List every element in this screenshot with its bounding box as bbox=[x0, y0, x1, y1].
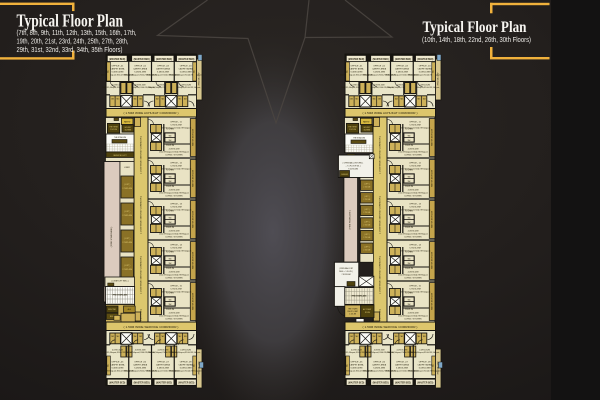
svg-text:5.76X3.49M: 5.76X3.49M bbox=[170, 207, 181, 209]
svg-text:2.7X2.4M: 2.7X2.4M bbox=[363, 199, 370, 201]
svg-text:OFFICE -03: OFFICE -03 bbox=[396, 66, 409, 68]
svg-text:5.76X3.49M: 5.76X3.49M bbox=[170, 125, 181, 127]
svg-text:( 1.50M WIDE SERVICE CORRIDOR: ( 1.50M WIDE SERVICE CORRIDOR ) bbox=[380, 196, 382, 234]
svg-text:OFFICE -07: OFFICE -07 bbox=[157, 362, 170, 364]
svg-text:OFFICE -04: OFFICE -04 bbox=[419, 66, 432, 68]
svg-text:(MASTER BED): (MASTER BED) bbox=[417, 58, 433, 61]
svg-text:(MASTER BED): (MASTER BED) bbox=[134, 58, 150, 61]
svg-text:CARPET AREA: CARPET AREA bbox=[179, 68, 194, 71]
svg-text:4.09X3.32M: 4.09X3.32M bbox=[408, 190, 419, 192]
svg-text:OFFICE - 14: OFFICE - 14 bbox=[409, 245, 422, 247]
svg-text:( LIFT ): ( LIFT ) bbox=[364, 184, 370, 186]
svg-text:( LIFT ): ( LIFT ) bbox=[124, 184, 131, 186]
svg-text:5.76X3.49M: 5.76X3.49M bbox=[170, 289, 181, 291]
svg-text:2.16X1.2M: 2.16X1.2M bbox=[405, 309, 414, 311]
svg-text:THE TERR: THE TERR bbox=[109, 126, 118, 128]
svg-text:5.76X3.49M: 5.76X3.49M bbox=[409, 248, 420, 250]
svg-text:MASTER BEDROOM: MASTER BEDROOM bbox=[430, 292, 433, 310]
svg-text:2.16X1.2M: 2.16X1.2M bbox=[166, 227, 175, 229]
svg-text:2.16X1.2M: 2.16X1.2M bbox=[405, 268, 414, 270]
svg-text:4.09X3.32M: 4.09X3.32M bbox=[169, 231, 180, 233]
svg-text:5.08X3.49M: 5.08X3.49M bbox=[157, 72, 169, 74]
svg-text:OFFICE - 11: OFFICE - 11 bbox=[170, 122, 182, 124]
svg-text:MASTER BEDROOM: MASTER BEDROOM bbox=[191, 251, 194, 269]
svg-text:2.70X2.40M: 2.70X2.40M bbox=[122, 215, 132, 217]
svg-text:( 1.50M WIDE SERVICE CORRIDOR: ( 1.50M WIDE SERVICE CORRIDOR ) bbox=[141, 196, 143, 234]
svg-text:( LIFT ): ( LIFT ) bbox=[364, 234, 370, 236]
svg-text:( LIFT ): ( LIFT ) bbox=[124, 211, 131, 213]
svg-text:2.16X1.2M: 2.16X1.2M bbox=[405, 145, 414, 147]
svg-text:5.08X3.49M: 5.08X3.49M bbox=[112, 72, 124, 74]
svg-text:MASTER BEDROOM: MASTER BEDROOM bbox=[430, 128, 433, 146]
svg-text:4.09X3.32M: 4.09X3.32M bbox=[408, 272, 419, 274]
svg-text:(MASTER BED): (MASTER BED) bbox=[156, 58, 172, 61]
svg-text:2.70X2.40M: 2.70X2.40M bbox=[122, 188, 132, 190]
svg-text:5.08X3.49M: 5.08X3.49M bbox=[351, 72, 363, 74]
svg-text:B.M.S: B.M.S bbox=[110, 316, 114, 318]
svg-text:SERVICE DUCT: SERVICE DUCT bbox=[113, 155, 127, 157]
svg-text:5.76X3.49M: 5.76X3.49M bbox=[170, 248, 181, 250]
svg-text:MASTER BEDROOM: MASTER BEDROOM bbox=[430, 169, 433, 187]
svg-text:KITCHEN: KITCHEN bbox=[166, 129, 174, 131]
svg-text:LIVING / KITCHEN: LIVING / KITCHEN bbox=[404, 196, 422, 198]
svg-text:7.50X3.00M: 7.50X3.00M bbox=[341, 274, 351, 276]
svg-text:OFFICE -01: OFFICE -01 bbox=[112, 66, 125, 68]
svg-text:OFFICE -07: OFFICE -07 bbox=[396, 362, 409, 364]
svg-text:5.08X3.49M: 5.08X3.49M bbox=[373, 368, 385, 370]
svg-text:2.70X2.40M: 2.70X2.40M bbox=[122, 242, 132, 244]
svg-text:CARPET AREA: CARPET AREA bbox=[418, 364, 433, 367]
svg-text:MASTER BEDROOM: MASTER BEDROOM bbox=[191, 169, 194, 187]
svg-text:18&#39;9&quot;X11&#39;5&quot;: 18&#39;9&quot;X11&#39;5&quot; bbox=[399, 127, 430, 130]
svg-text:( LIFT ): ( LIFT ) bbox=[364, 196, 370, 198]
svg-text:OFFICE - 13: OFFICE - 13 bbox=[170, 204, 183, 206]
svg-text:( LIFT ): ( LIFT ) bbox=[124, 238, 131, 240]
svg-text:2.16X1.2M: 2.16X1.2M bbox=[405, 186, 414, 188]
svg-text:PANTRY: PANTRY bbox=[124, 120, 132, 123]
svg-text:4.09X3.32M: 4.09X3.32M bbox=[135, 350, 146, 352]
svg-text:OFFICE - 13: OFFICE - 13 bbox=[409, 204, 422, 206]
svg-text:5.08X3.49M: 5.08X3.49M bbox=[419, 72, 431, 74]
svg-text:THE TERR: THE TERR bbox=[348, 126, 357, 128]
svg-text:(MASTER BED): (MASTER BED) bbox=[348, 382, 364, 385]
svg-text:5.08X3.49M: 5.08X3.49M bbox=[134, 72, 146, 74]
svg-text:OFFICE - 12: OFFICE - 12 bbox=[409, 163, 422, 165]
svg-text:SCREEN: SCREEN bbox=[364, 130, 371, 132]
svg-text:THE STADIUM: THE STADIUM bbox=[114, 136, 127, 139]
svg-text:( FIRE STAIRCASE ): ( FIRE STAIRCASE ) bbox=[110, 226, 113, 247]
svg-text:2.1X1.8M: 2.1X1.8M bbox=[349, 314, 356, 316]
svg-text:Typical Floor Plan: Typical Floor Plan bbox=[423, 19, 527, 36]
svg-text:OFFICE -08: OFFICE -08 bbox=[419, 362, 432, 364]
svg-text:MASTER BEDROOM: MASTER BEDROOM bbox=[191, 210, 194, 228]
svg-text:5.08X3.49M: 5.08X3.49M bbox=[351, 368, 363, 370]
svg-text:CARPET AREA: CARPET AREA bbox=[110, 68, 125, 71]
svg-text:2.16X1.2M: 2.16X1.2M bbox=[166, 268, 175, 270]
svg-text:OFFICE -03: OFFICE -03 bbox=[157, 66, 170, 68]
svg-text:5.08X3.49M: 5.08X3.49M bbox=[180, 72, 192, 74]
svg-text:18&#39;9&quot;X11&#39;5&quot;: 18&#39;9&quot;X11&#39;5&quot; bbox=[399, 291, 430, 294]
svg-text:LIVING / KITCHEN: LIVING / KITCHEN bbox=[165, 319, 183, 321]
svg-text:OFFICE -05: OFFICE -05 bbox=[351, 362, 364, 364]
svg-text:( 1.50M WIDE SERVICE CORRIDOR: ( 1.50M WIDE SERVICE CORRIDOR ) bbox=[363, 326, 418, 329]
svg-text:LIVING / KITCHEN: LIVING / KITCHEN bbox=[404, 278, 422, 280]
svg-text:2.16X1.2M: 2.16X1.2M bbox=[405, 227, 414, 229]
svg-text:OFFICE - 14: OFFICE - 14 bbox=[170, 245, 183, 247]
svg-text:CARPET AREA: CARPET AREA bbox=[156, 68, 171, 71]
svg-text:5.08X3.49M: 5.08X3.49M bbox=[157, 368, 169, 370]
svg-text:4.09X3.32M: 4.09X3.32M bbox=[351, 350, 362, 352]
svg-text:OFFICE -02: OFFICE -02 bbox=[134, 66, 147, 68]
svg-text:18&#39;9&quot;X11&#39;5&quot;: 18&#39;9&quot;X11&#39;5&quot; bbox=[399, 250, 430, 253]
svg-text:5.08X3.49M: 5.08X3.49M bbox=[373, 72, 385, 74]
svg-text:2.7X2.4M: 2.7X2.4M bbox=[363, 224, 370, 226]
svg-text:16&#39;8&quot;X11&#39;5&quot;: 16&#39;8&quot;X11&#39;5&quot; bbox=[169, 370, 202, 373]
svg-text:(MASTER BED): (MASTER BED) bbox=[417, 382, 433, 385]
svg-text:LIVING / KITCHEN: LIVING / KITCHEN bbox=[404, 319, 422, 321]
svg-text:2.5X2.0M: 2.5X2.0M bbox=[110, 129, 117, 131]
svg-text:OFFICE -02: OFFICE -02 bbox=[373, 66, 386, 68]
svg-text:THE TOWER: THE TOWER bbox=[348, 309, 358, 311]
svg-text:(MASTER BED): (MASTER BED) bbox=[178, 58, 194, 61]
svg-text:( LIFT ): ( LIFT ) bbox=[364, 209, 370, 211]
svg-text:CARPET AREA: CARPET AREA bbox=[133, 68, 148, 71]
svg-text:CARPET AREA: CARPET AREA bbox=[372, 364, 387, 367]
svg-text:OFFICE - 15: OFFICE - 15 bbox=[409, 286, 422, 288]
svg-text:LIVING / KITCHEN: LIVING / KITCHEN bbox=[165, 196, 183, 198]
svg-text:( LIFT ): ( LIFT ) bbox=[364, 221, 370, 223]
svg-text:( LIFT ): ( LIFT ) bbox=[124, 265, 131, 267]
svg-text:LIVING / KITCHEN: LIVING / KITCHEN bbox=[165, 155, 183, 157]
svg-text:OFFICE -05: OFFICE -05 bbox=[112, 362, 125, 364]
svg-text:(MASTER BED): (MASTER BED) bbox=[109, 58, 125, 61]
svg-text:2.7X2.4M: 2.7X2.4M bbox=[363, 212, 370, 214]
svg-text:OFFICE - 15: OFFICE - 15 bbox=[170, 286, 183, 288]
svg-text:CHILLER: CHILLER bbox=[341, 174, 349, 176]
svg-text:4.09X3.32M: 4.09X3.32M bbox=[180, 350, 191, 352]
svg-text:4.09X3.32M: 4.09X3.32M bbox=[169, 313, 180, 315]
svg-text:FIRE TWR: FIRE TWR bbox=[108, 309, 117, 311]
svg-text:5.08X3.49M: 5.08X3.49M bbox=[419, 368, 431, 370]
svg-text:4.09X3.32M: 4.09X3.32M bbox=[112, 350, 123, 352]
svg-text:( 1.50M WIDE SERVICE CORRIDOR: ( 1.50M WIDE SERVICE CORRIDOR ) bbox=[141, 136, 143, 174]
svg-text:4.09X3.32M: 4.09X3.32M bbox=[169, 190, 180, 192]
svg-text:CARPET AREA: CARPET AREA bbox=[179, 364, 194, 367]
svg-text:SCREEN: SCREEN bbox=[125, 130, 132, 132]
svg-text:5.08X3.49M: 5.08X3.49M bbox=[396, 368, 408, 370]
svg-text:CARPET AREA: CARPET AREA bbox=[133, 364, 148, 367]
svg-text:OFFICE -06: OFFICE -06 bbox=[134, 362, 147, 364]
svg-text:MASTER BEDROOM: MASTER BEDROOM bbox=[191, 128, 194, 146]
svg-text:16&#39;8&quot;X11&#39;5&quot;: 16&#39;8&quot;X11&#39;5&quot; bbox=[408, 74, 441, 77]
svg-text:( OPEN BALCONY WELL: ( OPEN BALCONY WELL bbox=[343, 162, 364, 165]
svg-text:5.76X3.49M: 5.76X3.49M bbox=[170, 166, 181, 168]
svg-text:( FIRE STAIRCASE ): ( FIRE STAIRCASE ) bbox=[349, 210, 352, 230]
svg-text:18&#39;9&quot;X11&#39;5&quot;: 18&#39;9&quot;X11&#39;5&quot; bbox=[160, 250, 191, 253]
svg-text:2.7X2.4M: 2.7X2.4M bbox=[363, 250, 370, 252]
svg-text:( OPEN BALCONY: ( OPEN BALCONY bbox=[339, 267, 354, 270]
svg-text:LOBBY: LOBBY bbox=[124, 167, 131, 169]
svg-text:CARPET AREA: CARPET AREA bbox=[395, 364, 410, 367]
svg-text:4.09X3.32M: 4.09X3.32M bbox=[408, 231, 419, 233]
svg-text:THE STADIUM: THE STADIUM bbox=[353, 137, 366, 140]
svg-text:KITCHEN: KITCHEN bbox=[405, 170, 413, 172]
svg-text:(MASTER BED): (MASTER BED) bbox=[395, 382, 411, 385]
svg-text:KITCHEN: KITCHEN bbox=[405, 129, 413, 131]
svg-text:4.09X3.32M: 4.09X3.32M bbox=[169, 272, 180, 274]
svg-text:MASTER BEDROOM: MASTER BEDROOM bbox=[430, 251, 433, 269]
svg-text:LIVING / KITCHEN: LIVING / KITCHEN bbox=[165, 237, 183, 239]
svg-text:4.09X3.32M: 4.09X3.32M bbox=[408, 313, 419, 315]
svg-text:2.7X2.4M: 2.7X2.4M bbox=[363, 237, 370, 239]
svg-text:CARPET AREA: CARPET AREA bbox=[156, 364, 171, 367]
svg-text:(MASTER BED): (MASTER BED) bbox=[134, 382, 150, 385]
svg-text:5.08X3.49M: 5.08X3.49M bbox=[134, 368, 146, 370]
svg-text:CARPET AREA: CARPET AREA bbox=[372, 68, 387, 71]
svg-text:OFFICE -01: OFFICE -01 bbox=[351, 66, 364, 68]
svg-text:5.08X3.49M: 5.08X3.49M bbox=[180, 368, 192, 370]
svg-text:(MASTER BED): (MASTER BED) bbox=[373, 382, 389, 385]
svg-text:CARPET AREA: CARPET AREA bbox=[110, 364, 125, 367]
svg-text:5.76X3.49M: 5.76X3.49M bbox=[409, 289, 420, 291]
svg-text:2.16X1.2M: 2.16X1.2M bbox=[166, 145, 175, 147]
svg-text:16&#39;8&quot;X11&#39;5&quot;: 16&#39;8&quot;X11&#39;5&quot; bbox=[408, 370, 441, 373]
svg-text:4.09X3.32M: 4.09X3.32M bbox=[397, 350, 408, 352]
svg-text:( 1.50M WIDE SERVICE CORRIDOR: ( 1.50M WIDE SERVICE CORRIDOR ) bbox=[380, 256, 382, 294]
svg-text:DN/UP LOBBY: DN/UP LOBBY bbox=[347, 311, 359, 313]
svg-text:18&#39;9&quot;X11&#39;5&quot;: 18&#39;9&quot;X11&#39;5&quot; bbox=[160, 127, 191, 130]
svg-text:4.09X3.32M: 4.09X3.32M bbox=[374, 350, 385, 352]
svg-text:OFFICE -04: OFFICE -04 bbox=[180, 66, 193, 68]
svg-text:2.16X1.2M: 2.16X1.2M bbox=[166, 186, 175, 188]
svg-text:18&#39;9&quot;X11&#39;5&quot;: 18&#39;9&quot;X11&#39;5&quot; bbox=[160, 291, 191, 294]
svg-text:LIVING / KITCHEN: LIVING / KITCHEN bbox=[404, 237, 422, 239]
svg-text:+ 7.5 FLOOR WL ): + 7.5 FLOOR WL ) bbox=[346, 166, 361, 168]
svg-text:CARPET AREA: CARPET AREA bbox=[418, 68, 433, 71]
svg-text:13&#39;5&quot;X10&#39;9&quot;: 13&#39;5&quot;X10&#39;9&quot; bbox=[410, 351, 440, 354]
svg-text:KITCHEN: KITCHEN bbox=[166, 293, 174, 295]
svg-text:5.08X3.49M: 5.08X3.49M bbox=[112, 368, 124, 370]
svg-text:FIRE STAIRCASE: FIRE STAIRCASE bbox=[113, 294, 129, 297]
svg-text:KITCHEN: KITCHEN bbox=[166, 252, 174, 254]
svg-text:LIVING / KITCHEN: LIVING / KITCHEN bbox=[165, 278, 183, 280]
svg-text:5.76X3.49M: 5.76X3.49M bbox=[409, 166, 420, 168]
svg-text:5.08X3.49M: 5.08X3.49M bbox=[396, 72, 408, 74]
svg-text:2.7X2.4M: 2.7X2.4M bbox=[363, 187, 370, 189]
svg-text:ROOM: ROOM bbox=[365, 312, 371, 314]
svg-text:KITCHEN: KITCHEN bbox=[405, 252, 413, 254]
svg-text:16&#39;8&quot;X11&#39;5&quot;: 16&#39;8&quot;X11&#39;5&quot; bbox=[169, 74, 202, 77]
svg-text:KITCHEN: KITCHEN bbox=[166, 170, 174, 172]
svg-text:4.09X3.32M: 4.09X3.32M bbox=[419, 350, 430, 352]
svg-text:KITCHEN: KITCHEN bbox=[405, 211, 413, 213]
svg-text:CARPET AREA: CARPET AREA bbox=[349, 68, 364, 71]
svg-text:18&#39;9&quot;X11&#39;5&quot;: 18&#39;9&quot;X11&#39;5&quot; bbox=[399, 209, 430, 212]
svg-text:2.16X1.2M: 2.16X1.2M bbox=[166, 309, 175, 311]
svg-text:( LOBBY/LIFT WELL ): ( LOBBY/LIFT WELL ) bbox=[111, 281, 129, 283]
svg-text:18&#39;9&quot;X11&#39;5&quot;: 18&#39;9&quot;X11&#39;5&quot; bbox=[399, 168, 430, 171]
svg-text:CARPET AREA: CARPET AREA bbox=[395, 68, 410, 71]
svg-text:OFFICE -08: OFFICE -08 bbox=[180, 362, 193, 364]
svg-text:( 1.50M WIDE SERVICE CORRIDOR: ( 1.50M WIDE SERVICE CORRIDOR ) bbox=[124, 326, 179, 329]
svg-text:OFFICE -06: OFFICE -06 bbox=[373, 362, 386, 364]
svg-text:MASTER BEDROOM: MASTER BEDROOM bbox=[191, 292, 194, 310]
svg-text:PANTRY: PANTRY bbox=[363, 120, 371, 123]
svg-text:(MASTER BED): (MASTER BED) bbox=[395, 58, 411, 61]
svg-text:18&#39;9&quot;X11&#39;5&quot;: 18&#39;9&quot;X11&#39;5&quot; bbox=[160, 168, 191, 171]
svg-text:WELL + 5 FL WL ): WELL + 5 FL WL ) bbox=[339, 271, 353, 273]
svg-text:29th, 31st, 32nd, 33rd, 34th,: 29th, 31st, 32nd, 33rd, 34th, 35th Floor… bbox=[17, 45, 123, 54]
svg-text:( 1.50M WIDE SERVICE CORRIDOR: ( 1.50M WIDE SERVICE CORRIDOR ) bbox=[380, 136, 382, 174]
svg-text:OFFICE - 11: OFFICE - 11 bbox=[409, 122, 421, 124]
svg-text:FIRE STAIRCASE: FIRE STAIRCASE bbox=[352, 295, 368, 298]
svg-text:OFFICE - 12: OFFICE - 12 bbox=[170, 163, 183, 165]
svg-text:( LIFT ): ( LIFT ) bbox=[364, 247, 370, 249]
svg-text:18&#39;9&quot;X11&#39;5&quot;: 18&#39;9&quot;X11&#39;5&quot; bbox=[160, 209, 191, 212]
svg-text:4.09X3.32M: 4.09X3.32M bbox=[408, 149, 419, 151]
svg-text:( 1.50M WIDE ACHUKAT CORRIDOR: ( 1.50M WIDE ACHUKAT CORRIDOR ) bbox=[124, 112, 179, 115]
svg-text:(MASTER BED): (MASTER BED) bbox=[156, 382, 172, 385]
svg-text:5.76X3.49M: 5.76X3.49M bbox=[409, 207, 420, 209]
svg-text:(10th, 14th, 18th, 22nd, 26th,: (10th, 14th, 18th, 22nd, 26th, 30th Floo… bbox=[422, 35, 531, 44]
svg-text:4.09X3.32M: 4.09X3.32M bbox=[158, 350, 169, 352]
svg-text:(MASTER BED): (MASTER BED) bbox=[178, 382, 194, 385]
svg-text:( 1.50M WIDE ACHUKAT CORRIDOR: ( 1.50M WIDE ACHUKAT CORRIDOR ) bbox=[363, 112, 418, 115]
svg-text:KITCHEN: KITCHEN bbox=[166, 211, 174, 213]
svg-text:(MASTER BED): (MASTER BED) bbox=[373, 58, 389, 61]
svg-text:KITCHEN: KITCHEN bbox=[405, 293, 413, 295]
svg-text:( 1.50M WIDE SERVICE CORRIDOR: ( 1.50M WIDE SERVICE CORRIDOR ) bbox=[141, 256, 143, 294]
svg-text:4.09X3.32M: 4.09X3.32M bbox=[169, 149, 180, 151]
svg-text:CARPET AREA: CARPET AREA bbox=[349, 364, 364, 367]
svg-text:GOLF/LT: GOLF/LT bbox=[363, 127, 370, 129]
svg-text:13&#39;5&quot;X10&#39;9&quot;: 13&#39;5&quot;X10&#39;9&quot; bbox=[171, 351, 201, 354]
svg-text:(MASTER BED): (MASTER BED) bbox=[348, 58, 364, 61]
svg-text:(MASTER BED): (MASTER BED) bbox=[109, 382, 125, 385]
svg-text:2.5X2.0M: 2.5X2.0M bbox=[349, 129, 356, 131]
svg-text:5.76X3.49M: 5.76X3.49M bbox=[409, 125, 420, 127]
svg-text:LIVING / KITCHEN: LIVING / KITCHEN bbox=[404, 155, 422, 157]
svg-text:2.70X2.40M: 2.70X2.40M bbox=[122, 269, 132, 271]
svg-text:GOLF/LT: GOLF/LT bbox=[124, 127, 131, 129]
svg-text:MASTER BEDROOM: MASTER BEDROOM bbox=[430, 210, 433, 228]
